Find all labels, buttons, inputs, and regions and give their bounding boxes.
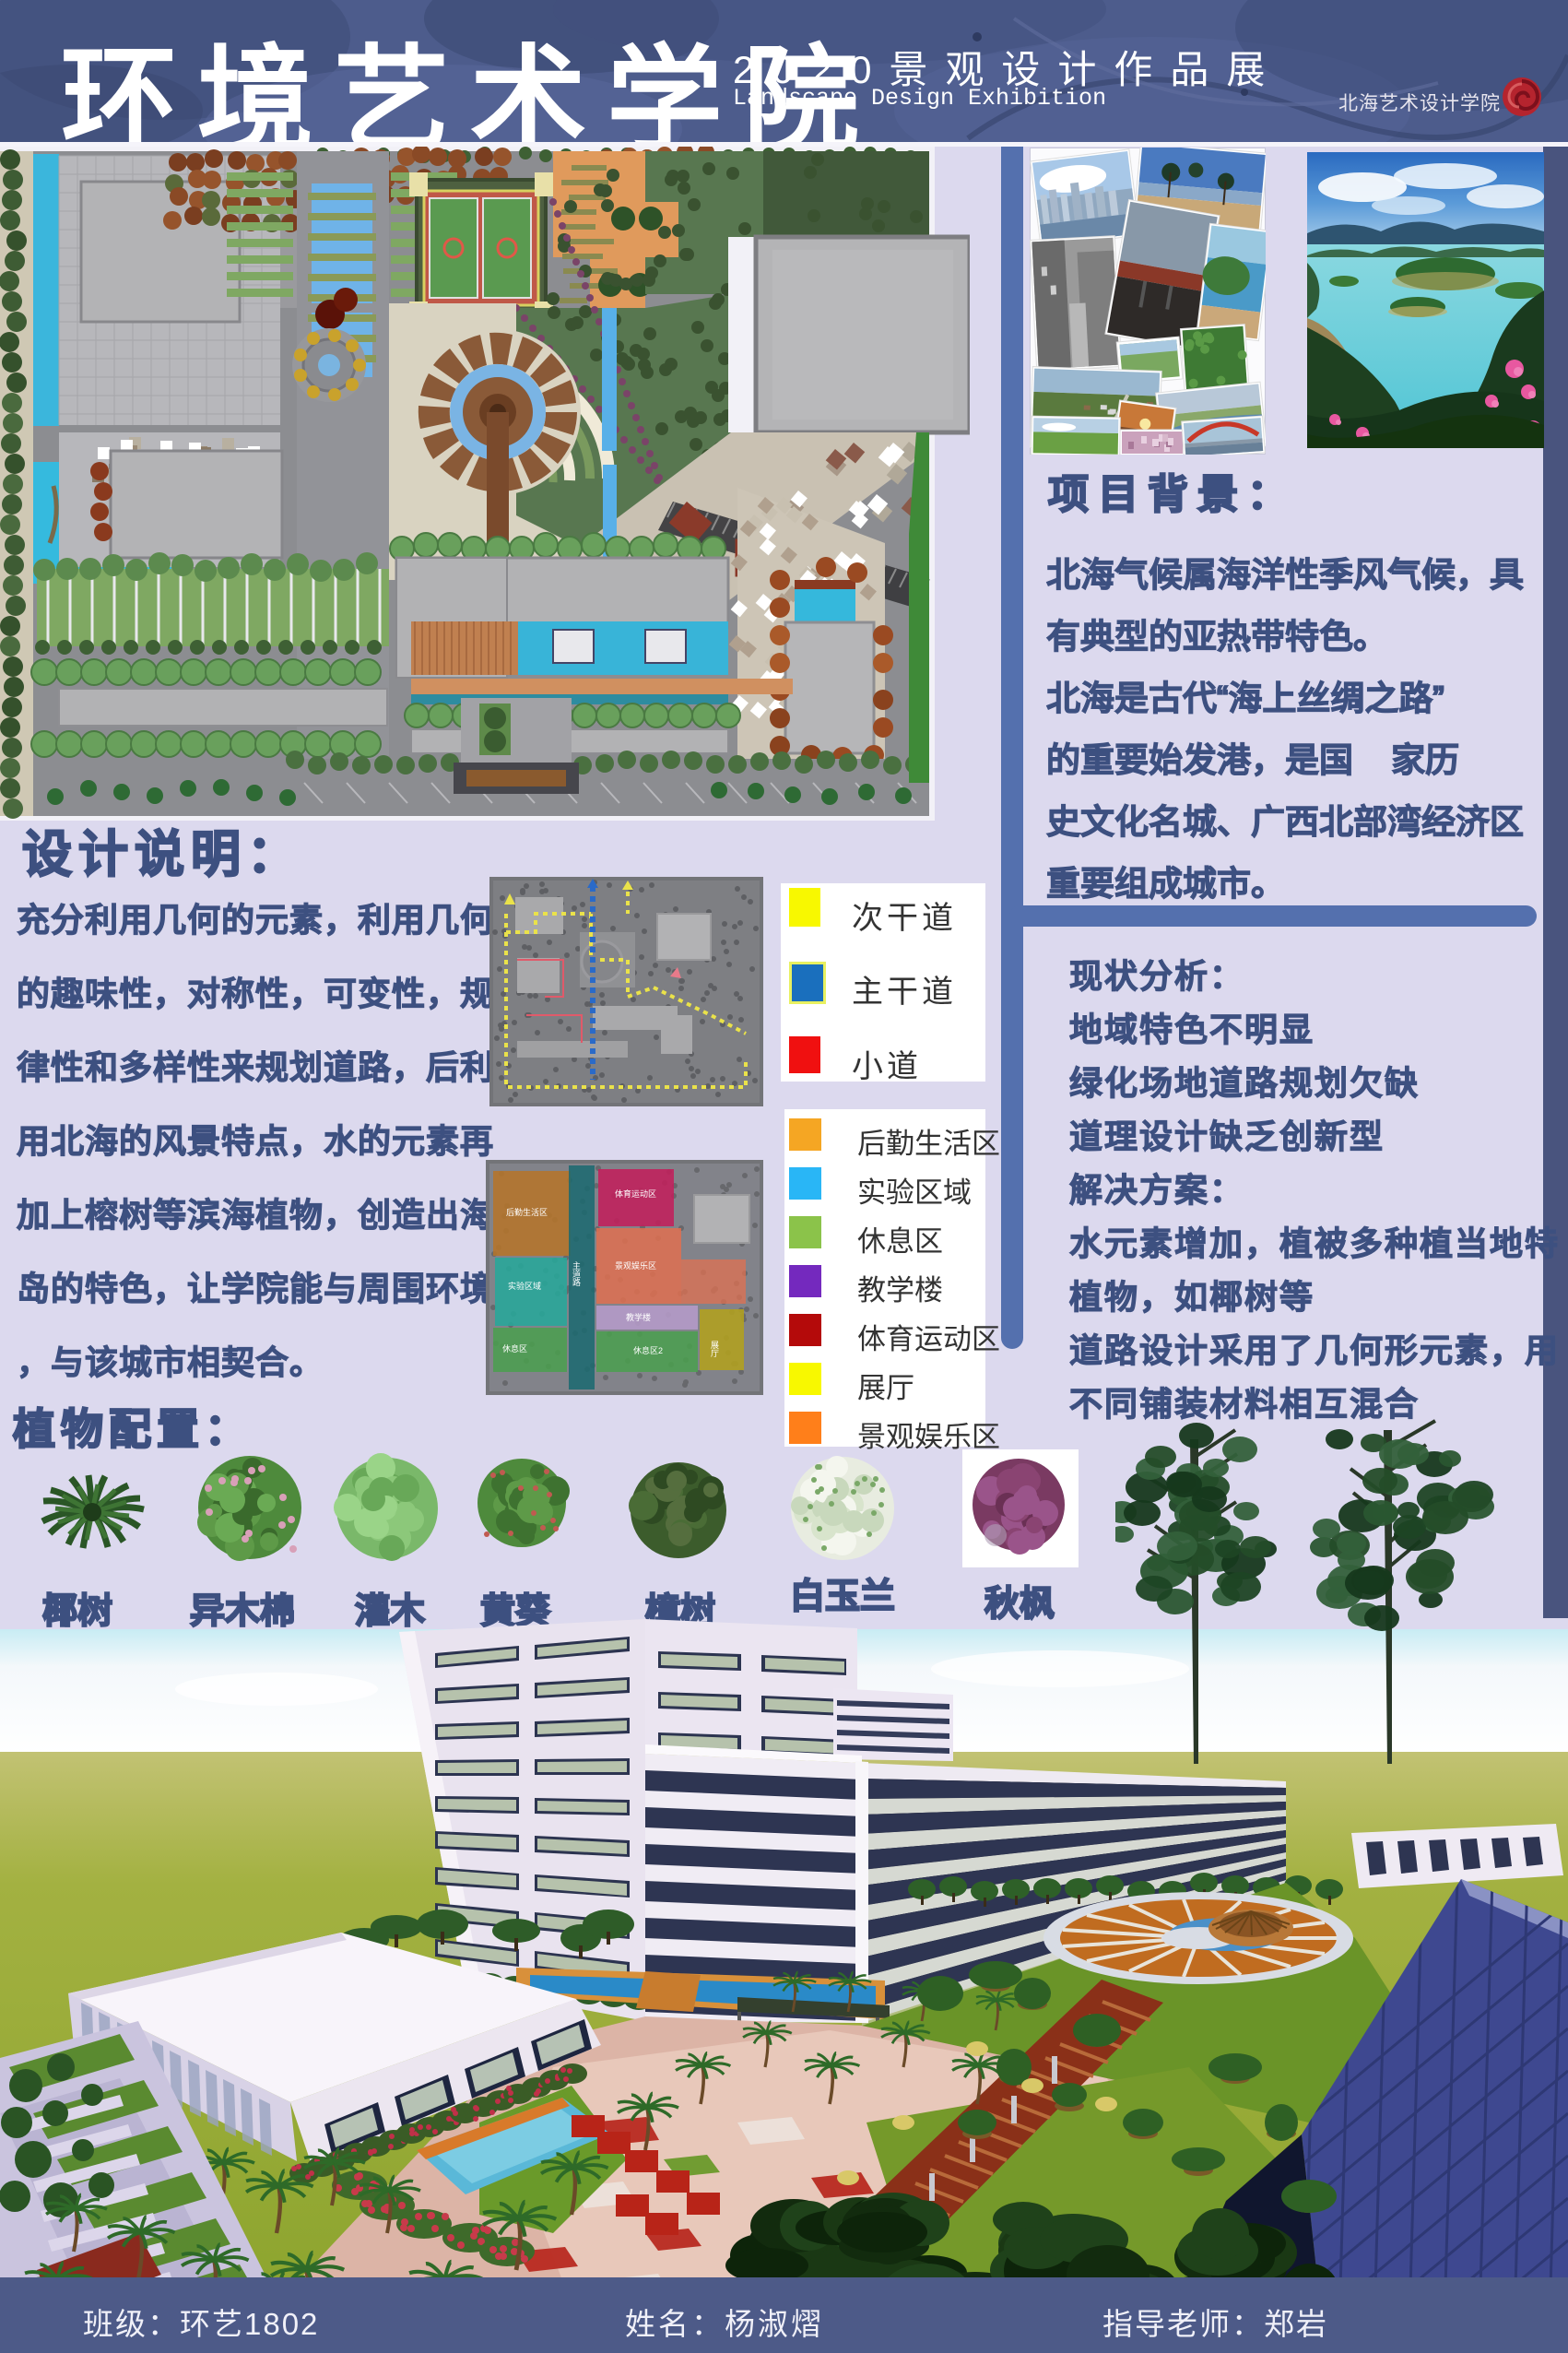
svg-text:休息区: 休息区: [502, 1343, 527, 1354]
svg-text:主道路: 主道路: [572, 1260, 581, 1287]
svg-text:后勤生活区: 后勤生活区: [506, 1207, 548, 1217]
svg-text:景观娱乐区: 景观娱乐区: [615, 1260, 656, 1271]
svg-text:展厅: 展厅: [710, 1341, 719, 1357]
svg-text:实验区域: 实验区域: [508, 1281, 541, 1291]
svg-text:教学楼: 教学楼: [626, 1312, 651, 1322]
svg-text:体育运动区: 体育运动区: [615, 1188, 656, 1199]
svg-text:休息区2: 休息区2: [633, 1345, 663, 1355]
